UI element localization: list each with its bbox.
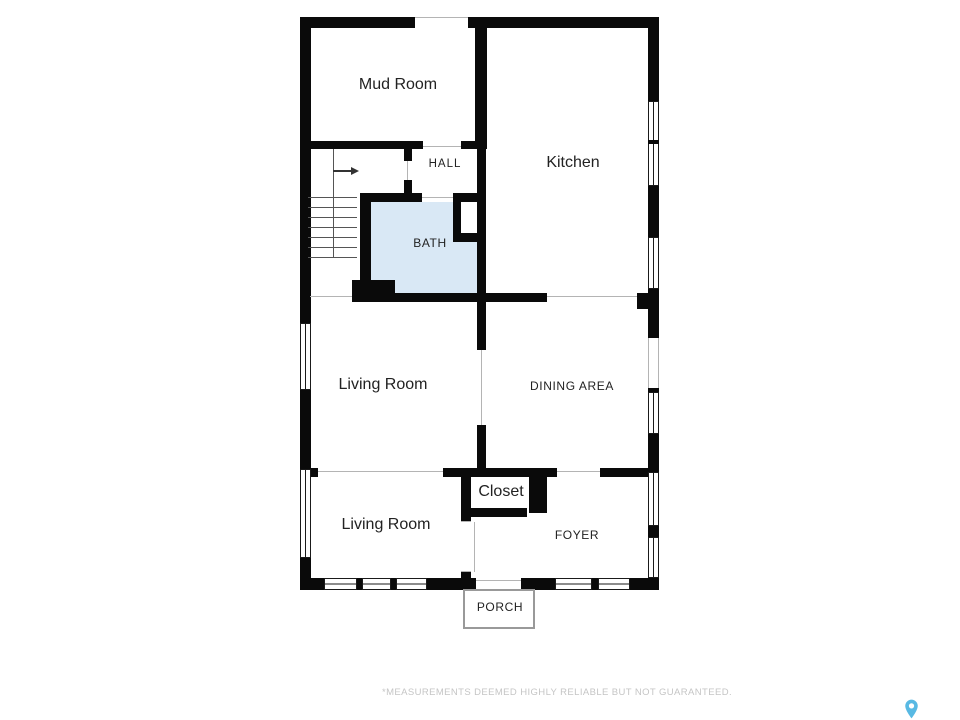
window-marker — [324, 578, 357, 590]
wall-segment — [300, 141, 423, 149]
window-marker — [300, 323, 311, 390]
opening-line — [407, 161, 408, 180]
wall-segment — [529, 477, 547, 513]
wall-segment — [648, 17, 659, 102]
opening-line — [415, 17, 468, 18]
window-marker — [648, 472, 659, 526]
window-marker — [362, 578, 391, 590]
room-label-dining-area: DINING AREA — [530, 379, 614, 393]
wall-segment — [648, 185, 659, 238]
room-label-foyer: FOYER — [555, 528, 599, 542]
room-label-living-room-upper: Living Room — [339, 376, 428, 394]
bath-niche — [461, 202, 477, 233]
window-marker — [396, 578, 427, 590]
window-marker — [598, 578, 630, 590]
opening-line — [557, 471, 600, 472]
window-marker — [555, 578, 592, 590]
wall-segment — [461, 572, 471, 590]
room-label-mud-room: Mud Room — [359, 76, 437, 94]
wall-segment — [648, 433, 659, 473]
room-label-porch: PORCH — [477, 600, 523, 614]
opening-line — [658, 338, 659, 388]
stair-tread — [308, 237, 357, 238]
wall-segment — [352, 293, 547, 302]
opening-line — [474, 522, 475, 572]
wall-segment — [360, 193, 422, 202]
opening-line — [318, 471, 443, 472]
room-label-hall: HALL — [429, 158, 462, 170]
window-marker — [648, 237, 659, 289]
floor-plan-canvas: Mud Room Kitchen HALL BATH Living Room D… — [0, 0, 960, 720]
wall-segment — [453, 193, 477, 202]
wall-segment — [404, 149, 412, 161]
window-mullion — [648, 140, 659, 144]
disclaimer-text: *MEASUREMENTS DEEMED HIGHLY RELIABLE BUT… — [357, 687, 757, 698]
opening-line — [423, 146, 461, 147]
stair-direction-arrow — [333, 170, 351, 172]
stair-tread — [308, 217, 357, 218]
opening-line — [422, 197, 453, 198]
room-label-bath: BATH — [413, 236, 447, 250]
room-label-living-room-lower: Living Room — [342, 516, 431, 534]
wall-segment — [300, 390, 311, 470]
wall-segment — [453, 233, 486, 242]
opening-line — [461, 571, 471, 572]
stair-tread — [308, 227, 357, 228]
wall-segment — [461, 508, 527, 517]
opening-line — [476, 580, 521, 581]
window-marker — [648, 392, 659, 434]
wall-segment — [461, 141, 487, 149]
wall-segment — [352, 280, 395, 293]
opening-line — [310, 296, 352, 297]
stair-tread — [308, 207, 357, 208]
stair-rail-line — [333, 149, 334, 258]
wall-segment — [443, 468, 557, 477]
room-label-kitchen: Kitchen — [546, 154, 599, 172]
wall-segment — [468, 17, 658, 28]
wall-segment — [300, 17, 311, 324]
stair-tread — [308, 257, 357, 258]
stair-tread — [308, 197, 357, 198]
wall-segment — [648, 288, 659, 338]
stair-tread — [308, 247, 357, 248]
wall-segment — [300, 578, 325, 590]
stair-arrowhead-icon — [351, 167, 359, 175]
map-pin-icon — [904, 699, 919, 719]
wall-segment — [629, 578, 658, 590]
opening-line — [461, 521, 471, 522]
wall-segment — [360, 193, 371, 289]
opening-line — [648, 338, 649, 388]
opening-line — [481, 350, 482, 425]
opening-line — [547, 296, 637, 297]
wall-segment — [637, 293, 648, 309]
wall-segment — [477, 149, 486, 350]
window-marker — [300, 469, 311, 558]
wall-segment — [300, 17, 415, 28]
room-label-closet: Closet — [478, 483, 523, 501]
wall-segment — [475, 17, 487, 149]
wall-segment — [404, 180, 412, 193]
window-marker — [648, 537, 659, 578]
